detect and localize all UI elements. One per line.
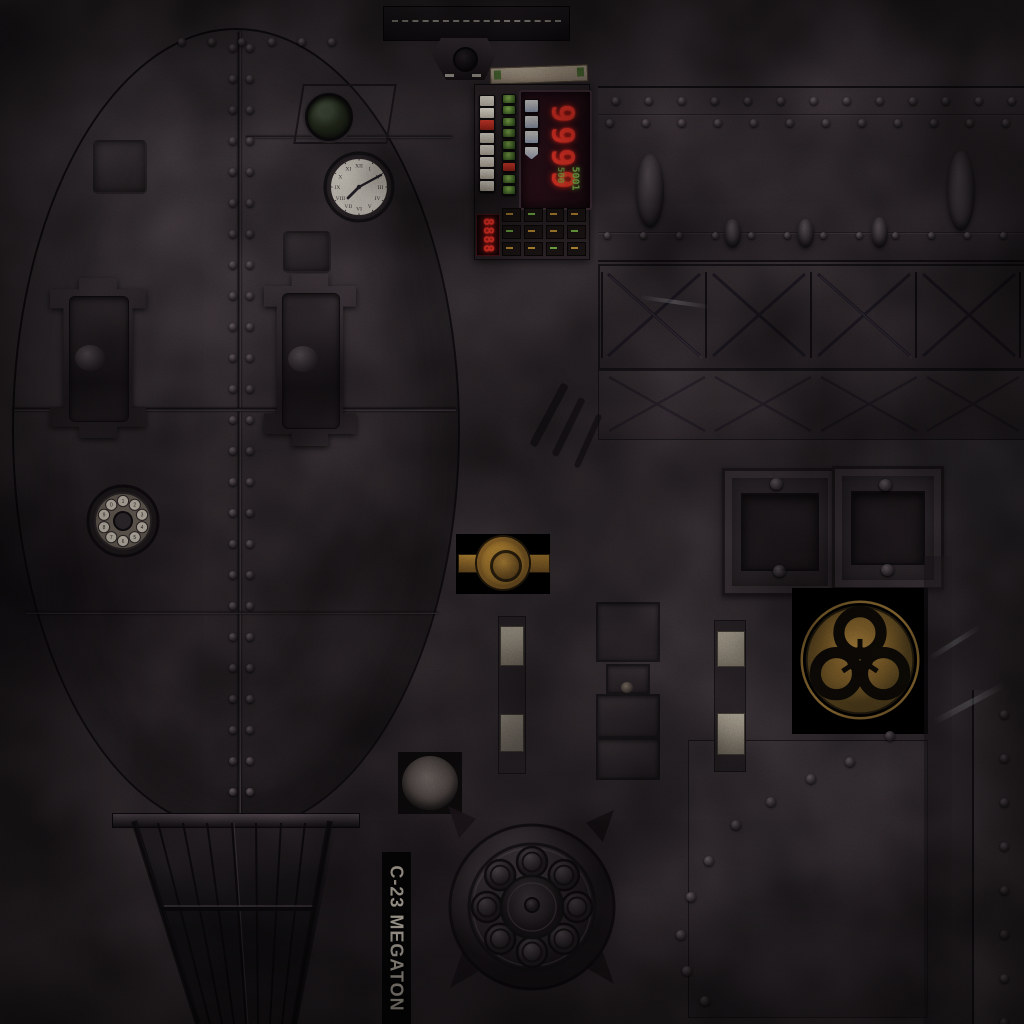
rivet bbox=[876, 97, 884, 105]
rivet bbox=[1000, 710, 1009, 719]
rivet bbox=[843, 97, 851, 105]
rivet bbox=[712, 232, 719, 239]
svg-text:III: III bbox=[378, 185, 384, 191]
rivet bbox=[246, 509, 254, 517]
svg-text:VI: VI bbox=[356, 207, 362, 213]
rivet bbox=[229, 478, 237, 486]
rivet bbox=[229, 168, 237, 176]
rivet bbox=[229, 633, 237, 641]
panel-button bbox=[524, 99, 539, 113]
rivet bbox=[229, 44, 237, 52]
rivet bbox=[748, 232, 755, 239]
terminal-cell bbox=[524, 208, 543, 222]
rivet bbox=[229, 323, 237, 331]
rivet bbox=[856, 232, 863, 239]
panel-button bbox=[524, 115, 539, 129]
rivet bbox=[229, 137, 237, 145]
panel-button bbox=[479, 119, 495, 131]
panel-button bbox=[502, 185, 516, 195]
rivet bbox=[238, 38, 246, 46]
rivet bbox=[731, 820, 741, 830]
stencil-label-strip: C-23 MEGATON bbox=[382, 852, 411, 1024]
terminal-cell bbox=[567, 242, 586, 256]
hatch-plate-mid bbox=[283, 231, 331, 273]
panel-button bbox=[502, 162, 516, 172]
aux-display-1: 500 bbox=[553, 158, 567, 192]
rivet bbox=[894, 119, 902, 127]
emblem-square bbox=[792, 588, 928, 734]
terminal-cell bbox=[567, 208, 586, 222]
panel-button bbox=[479, 132, 495, 144]
mount-bracket-left bbox=[50, 278, 146, 438]
oval-boss-small-3 bbox=[871, 217, 888, 248]
rivet bbox=[229, 106, 237, 114]
terminal-cell bbox=[546, 208, 565, 222]
svg-text:3: 3 bbox=[141, 513, 144, 519]
center-plate-4 bbox=[596, 738, 660, 780]
rivet bbox=[642, 119, 650, 127]
svg-text:XII: XII bbox=[355, 164, 363, 170]
rivet bbox=[777, 97, 785, 105]
panel-button bbox=[502, 174, 516, 184]
rivet bbox=[229, 509, 237, 517]
rotary-dial-icon: 1234567890 bbox=[86, 484, 160, 558]
rivet bbox=[229, 354, 237, 362]
rivet bbox=[858, 119, 866, 127]
rivet bbox=[229, 447, 237, 455]
terminal-cell bbox=[502, 242, 521, 256]
panel-button bbox=[502, 151, 516, 161]
rivet bbox=[1000, 842, 1009, 851]
rivet bbox=[229, 757, 237, 765]
panel-button bbox=[502, 140, 516, 150]
terminal-cell bbox=[546, 225, 565, 239]
rivet bbox=[246, 106, 254, 114]
rivet bbox=[229, 416, 237, 424]
oval-boss-large-left bbox=[636, 154, 664, 228]
svg-text:9: 9 bbox=[103, 513, 106, 519]
rivet bbox=[820, 232, 827, 239]
oval-boss-small-1 bbox=[724, 219, 741, 248]
rivet bbox=[966, 119, 974, 127]
svg-text:VIII: VIII bbox=[336, 196, 346, 202]
terminal-cell bbox=[524, 225, 543, 239]
aux-display-2: 5001 bbox=[568, 158, 582, 198]
hatch-plate-top bbox=[93, 140, 147, 194]
rivet bbox=[612, 97, 620, 105]
panel-button bbox=[502, 94, 516, 104]
rivet bbox=[606, 119, 614, 127]
panel-button bbox=[502, 105, 516, 115]
rivet bbox=[806, 774, 816, 784]
svg-text:I: I bbox=[369, 167, 371, 173]
rivet bbox=[676, 930, 686, 940]
girder-band-upper bbox=[598, 264, 1024, 370]
rivet bbox=[229, 292, 237, 300]
rivet bbox=[676, 232, 683, 239]
rivet bbox=[750, 119, 758, 127]
rivet bbox=[246, 292, 254, 300]
rivet bbox=[229, 540, 237, 548]
rivet bbox=[246, 354, 254, 362]
rivet bbox=[1000, 886, 1009, 895]
svg-text:4: 4 bbox=[141, 525, 144, 531]
rivet bbox=[1000, 798, 1009, 807]
rivet bbox=[1000, 232, 1007, 239]
svg-text:IV: IV bbox=[375, 196, 381, 202]
rivet bbox=[964, 232, 971, 239]
rivet bbox=[645, 97, 653, 105]
terminal-grid bbox=[502, 208, 586, 256]
terminal-cell bbox=[502, 225, 521, 239]
rivet bbox=[885, 731, 895, 741]
rivet bbox=[246, 168, 254, 176]
rivet bbox=[229, 385, 237, 393]
terminal-cell bbox=[502, 208, 521, 222]
svg-text:5: 5 bbox=[133, 535, 136, 541]
rivet bbox=[928, 232, 935, 239]
rivet bbox=[229, 695, 237, 703]
rivet bbox=[229, 571, 237, 579]
oval-boss-large-right bbox=[947, 151, 975, 231]
rivet bbox=[246, 571, 254, 579]
panel-button bbox=[479, 156, 495, 168]
body-vertical-seam bbox=[238, 32, 241, 820]
rivet bbox=[704, 856, 714, 866]
rivet bbox=[246, 695, 254, 703]
latch-strip-right bbox=[714, 620, 746, 772]
rivet bbox=[229, 602, 237, 610]
disc-cap-tile bbox=[398, 752, 462, 814]
rivet bbox=[268, 38, 276, 46]
rivet bbox=[784, 232, 791, 239]
panel-button bbox=[479, 180, 495, 192]
center-plate-2 bbox=[606, 664, 650, 694]
rivet bbox=[1000, 930, 1009, 939]
rivet bbox=[208, 38, 216, 46]
rivet bbox=[229, 75, 237, 83]
rivet bbox=[682, 966, 692, 976]
terminal-cell bbox=[546, 242, 565, 256]
svg-text:6: 6 bbox=[122, 539, 125, 545]
rivet bbox=[930, 119, 938, 127]
rivet bbox=[604, 232, 611, 239]
rivet bbox=[246, 75, 254, 83]
rivet bbox=[1000, 754, 1009, 763]
rivet bbox=[178, 38, 186, 46]
girder-band-lower bbox=[598, 370, 1024, 440]
rivet bbox=[766, 797, 776, 807]
panel-button bbox=[479, 95, 495, 107]
fin-ribs bbox=[110, 813, 360, 1024]
rivet bbox=[246, 633, 254, 641]
top-rail bbox=[383, 6, 570, 41]
rivet bbox=[975, 97, 983, 105]
mount-bracket-right bbox=[264, 274, 356, 446]
rivet bbox=[1000, 974, 1009, 983]
rivet bbox=[246, 230, 254, 238]
panel-button bbox=[502, 128, 516, 138]
rivet bbox=[1000, 1018, 1009, 1024]
rivet bbox=[298, 38, 306, 46]
panel-button bbox=[502, 117, 516, 127]
body-lower-seam bbox=[26, 612, 438, 614]
rivet bbox=[246, 602, 254, 610]
rivet bbox=[1002, 119, 1010, 127]
rivet bbox=[714, 119, 722, 127]
rivet bbox=[246, 261, 254, 269]
rivet bbox=[229, 788, 237, 796]
rivet bbox=[845, 757, 855, 767]
rivet bbox=[246, 757, 254, 765]
rivet bbox=[686, 892, 696, 902]
svg-text:1: 1 bbox=[122, 499, 125, 505]
tail-fin bbox=[110, 813, 360, 1024]
svg-text:2: 2 bbox=[133, 503, 136, 509]
oval-boss-small-2 bbox=[797, 219, 814, 248]
disc-cap-icon bbox=[402, 756, 458, 810]
rivet bbox=[246, 478, 254, 486]
bolt-flange-icon bbox=[447, 822, 617, 992]
stencil-label: C-23 MEGATON bbox=[386, 865, 407, 1011]
rivet bbox=[246, 447, 254, 455]
texture-atlas: XIIIIIIIIIVVVIVIIVIIIIXXXI 1234567890 bbox=[0, 0, 1024, 1024]
clock-icon: XIIIIIIIIIVVVIVIIVIIIIXXXI bbox=[322, 150, 396, 224]
svg-text:8: 8 bbox=[103, 525, 106, 531]
panel-button bbox=[524, 130, 539, 144]
svg-text:X: X bbox=[338, 174, 342, 180]
rivet bbox=[229, 261, 237, 269]
svg-text:7: 7 bbox=[110, 535, 113, 541]
terminal-cell bbox=[524, 242, 543, 256]
rivet bbox=[229, 230, 237, 238]
right-edge-strip bbox=[972, 690, 1024, 1024]
panel-button bbox=[479, 107, 495, 119]
rivet bbox=[909, 97, 917, 105]
brass-fitting-tile bbox=[456, 534, 550, 594]
rivet bbox=[246, 137, 254, 145]
svg-text:IX: IX bbox=[335, 185, 341, 191]
sub-display: 8888 bbox=[476, 214, 500, 256]
rivet bbox=[711, 97, 719, 105]
rivet bbox=[744, 97, 752, 105]
dashed-line bbox=[392, 20, 561, 22]
rivet bbox=[678, 119, 686, 127]
panel-button bbox=[479, 144, 495, 156]
center-plate-1 bbox=[596, 602, 660, 662]
rivet bbox=[640, 232, 647, 239]
rivet bbox=[229, 199, 237, 207]
rivet bbox=[229, 726, 237, 734]
rivet bbox=[246, 416, 254, 424]
mounting-lug bbox=[432, 38, 496, 80]
biohazard-icon bbox=[798, 598, 922, 722]
rivet bbox=[786, 119, 794, 127]
vertical-channel bbox=[924, 556, 952, 1024]
svg-text:VII: VII bbox=[344, 204, 352, 210]
rivet bbox=[246, 788, 254, 796]
center-plate-3 bbox=[596, 694, 660, 738]
rivet bbox=[678, 97, 686, 105]
rivet bbox=[246, 540, 254, 548]
rivet bbox=[328, 38, 336, 46]
sub-display-value: 8888 bbox=[481, 217, 496, 252]
panel-button bbox=[479, 168, 495, 180]
rivet bbox=[700, 996, 710, 1006]
svg-text:V: V bbox=[368, 204, 372, 210]
rivet bbox=[246, 385, 254, 393]
porthole-gauge-icon bbox=[305, 93, 353, 141]
lug-hole-icon bbox=[453, 47, 478, 72]
svg-text:XI: XI bbox=[345, 167, 351, 173]
rivet bbox=[1008, 97, 1016, 105]
rivet bbox=[810, 97, 818, 105]
rivet bbox=[246, 199, 254, 207]
rivet bbox=[229, 664, 237, 672]
rivet bbox=[246, 726, 254, 734]
terminal-cell bbox=[567, 225, 586, 239]
rivet bbox=[892, 232, 899, 239]
rivet bbox=[942, 97, 950, 105]
rivet bbox=[822, 119, 830, 127]
rivet bbox=[246, 323, 254, 331]
svg-text:0: 0 bbox=[110, 503, 113, 509]
panel-top-strip bbox=[490, 64, 589, 84]
rivet bbox=[246, 44, 254, 52]
latch-strip-left bbox=[498, 616, 526, 774]
rivet bbox=[246, 664, 254, 672]
